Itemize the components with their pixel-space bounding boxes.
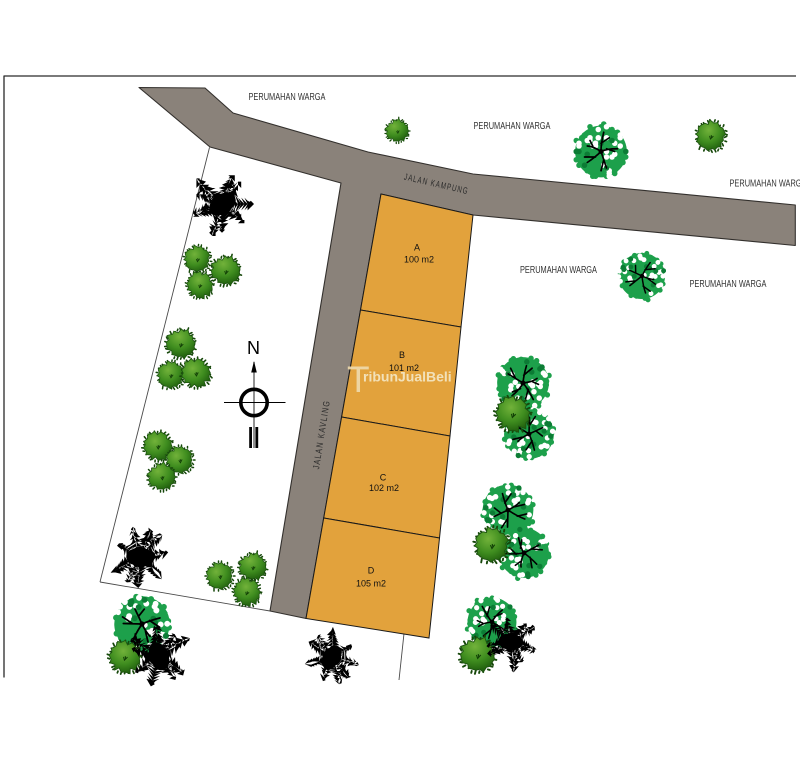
svg-text:100 m2: 100 m2 [404, 255, 434, 265]
svg-text:C: C [380, 473, 387, 483]
svg-text:PERUMAHAN WARGA: PERUMAHAN WARGA [249, 92, 326, 103]
svg-text:PERUMAHAN WARGA: PERUMAHAN WARGA [690, 279, 767, 290]
svg-text:PERUMAHAN WARGA: PERUMAHAN WARGA [730, 179, 800, 190]
svg-text:A: A [414, 243, 420, 253]
svg-text:D: D [368, 566, 375, 576]
svg-text:102 m2: 102 m2 [369, 483, 399, 493]
svg-text:ribunJualBeli: ribunJualBeli [363, 369, 452, 385]
svg-text:105 m2: 105 m2 [356, 579, 386, 589]
svg-text:B: B [399, 350, 405, 360]
svg-text:PERUMAHAN WARGA: PERUMAHAN WARGA [474, 121, 551, 132]
svg-text:N: N [247, 338, 260, 358]
svg-text:PERUMAHAN WARGA: PERUMAHAN WARGA [520, 265, 597, 276]
